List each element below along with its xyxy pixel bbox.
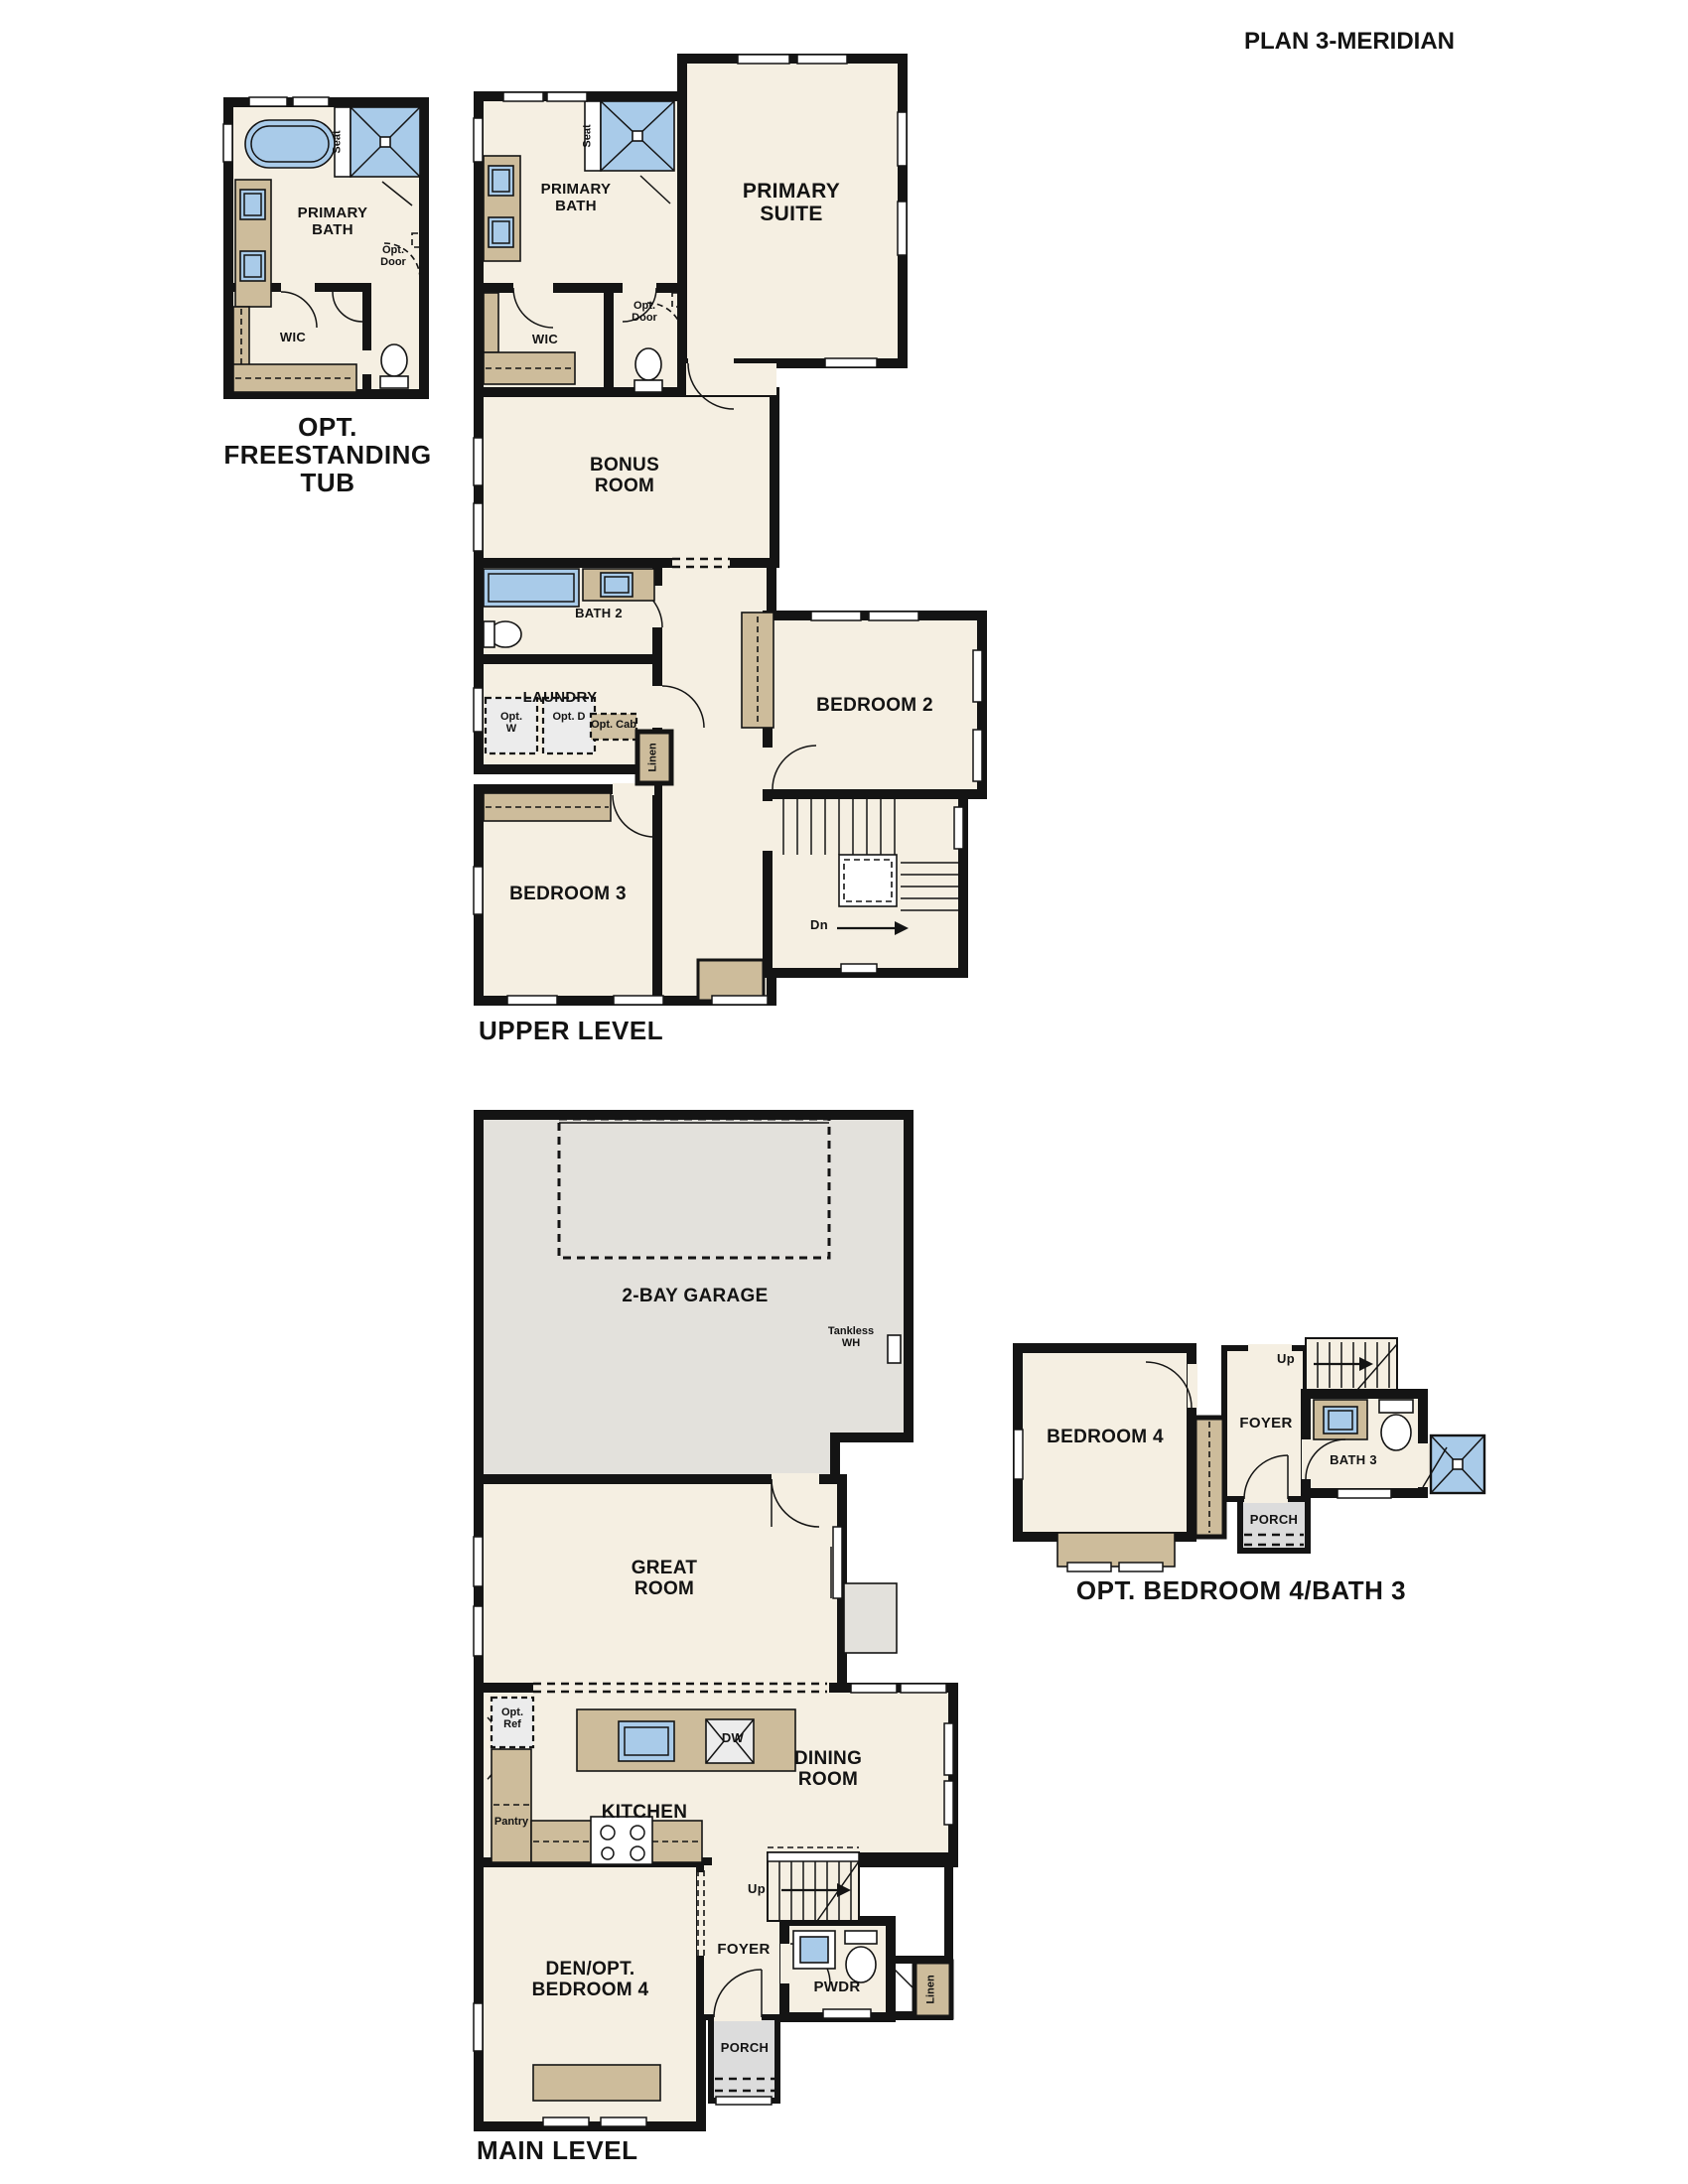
sliding-door: [833, 1527, 842, 1598]
opt-bed4-drawing: [1010, 1320, 1486, 1578]
den-label: DEN/OPT. BEDROOM 4: [513, 1960, 667, 2001]
window-seat: [1057, 1533, 1175, 1567]
porch-label: PORCH: [710, 2041, 779, 2055]
floorplan-page: PLAN 3-MERIDIAN: [0, 0, 1688, 2184]
toilet: [635, 348, 661, 380]
toilet: [380, 344, 408, 388]
upper-level-caption: UPPER LEVEL: [479, 1017, 717, 1044]
roof-below: [698, 960, 764, 1001]
opt-bed4-detail-plan: BEDROOM 4 FOYER Up BATH 3 PORCH: [1010, 1320, 1486, 1578]
tankless-water-heater: [888, 1335, 901, 1363]
opt-cab-label: Opt. Cab: [587, 720, 640, 732]
bedroom4-label: BEDROOM 4: [1024, 1428, 1187, 1448]
bath3-toilet-tank: [1379, 1400, 1413, 1413]
wic-shelf: [484, 293, 498, 352]
primary-suite-label: PRIMARY SUITE: [712, 180, 871, 225]
bedroom2-label: BEDROOM 2: [805, 696, 944, 717]
plan-title: PLAN 3-MERIDIAN: [1244, 28, 1455, 56]
main-stairs: [768, 1847, 859, 1921]
kitchen-island: [577, 1709, 795, 1771]
linen-label: Linen: [647, 743, 659, 771]
porch: [711, 2017, 777, 2101]
kitchen-label: KITCHEN: [589, 1803, 700, 1824]
dining-room-label: DINING ROOM: [774, 1749, 883, 1791]
patio-pad: [844, 1583, 897, 1653]
bath3-label: BATH 3: [1314, 1453, 1393, 1467]
main-linen-label: Linen: [925, 1975, 937, 2003]
main-level-plan: 2-BAY GARAGE Tankless WH GREAT ROOM Opt.…: [474, 1110, 966, 2137]
detail-primary-bath-label: PRIMARY BATH: [278, 205, 387, 238]
freestanding-tub: [245, 120, 335, 168]
pwdr-toilet-tank: [845, 1931, 877, 1944]
opt-tub-caption: OPT. FREESTANDING TUB: [197, 413, 459, 496]
up-label: Up: [740, 1882, 774, 1896]
vanity-two-sinks: [235, 180, 271, 307]
garage-label: 2-BAY GARAGE: [621, 1287, 770, 1307]
wic-label: WIC: [515, 333, 575, 346]
opt-tub-detail-plan: PRIMARY BATH Seat Opt. Door WIC: [223, 94, 432, 407]
opt-w-label: Opt. W: [494, 712, 528, 735]
window-seat: [533, 2065, 660, 2101]
opt-bed4-caption: OPT. BEDROOM 4/BATH 3: [1067, 1576, 1415, 1604]
detail-opt-door-label: Opt. Door: [370, 245, 416, 268]
stair-landing: [839, 855, 897, 906]
bed4-foyer-label: FOYER: [1230, 1416, 1302, 1433]
opt-door-label: Opt. Door: [621, 301, 668, 324]
main-level-caption: MAIN LEVEL: [477, 2136, 715, 2164]
pwdr-sink: [800, 1937, 828, 1963]
foyer-label: FOYER: [704, 1942, 783, 1959]
bed4-porch-label: PORCH: [1240, 1513, 1308, 1527]
detail-wic-label: WIC: [263, 331, 323, 344]
seat-label: Seat: [582, 124, 594, 147]
bath2-label: BATH 2: [571, 607, 627, 620]
opt-ref-label: Opt. Ref: [495, 1707, 529, 1730]
pwdr-label: PWDR: [789, 1979, 885, 1996]
bedroom3-label: BEDROOM 3: [495, 885, 640, 905]
upper-level-plan: PRIMARY SUITE PRIMARY BATH Seat Opt. Doo…: [474, 55, 985, 1016]
dw-label: DW: [718, 1731, 748, 1745]
pantry-label: Pantry: [486, 1817, 537, 1829]
detail-seat-label: Seat: [332, 130, 344, 153]
tankless-wh-label: Tankless WH: [819, 1326, 883, 1349]
dn-label: Dn: [803, 918, 835, 932]
laundry-label: LAUNDRY: [505, 690, 615, 707]
pwdr-toilet: [846, 1947, 876, 1982]
great-room-label: GREAT ROOM: [605, 1559, 724, 1600]
pantry-cabinet: [492, 1749, 531, 1862]
primary-bath-label: PRIMARY BATH: [521, 182, 631, 214]
bed4-up-label: Up: [1270, 1352, 1302, 1366]
bonus-room-label: BONUS ROOM: [563, 456, 686, 497]
opt-d-label: Opt. D: [552, 712, 586, 724]
bath3-toilet: [1381, 1415, 1411, 1450]
